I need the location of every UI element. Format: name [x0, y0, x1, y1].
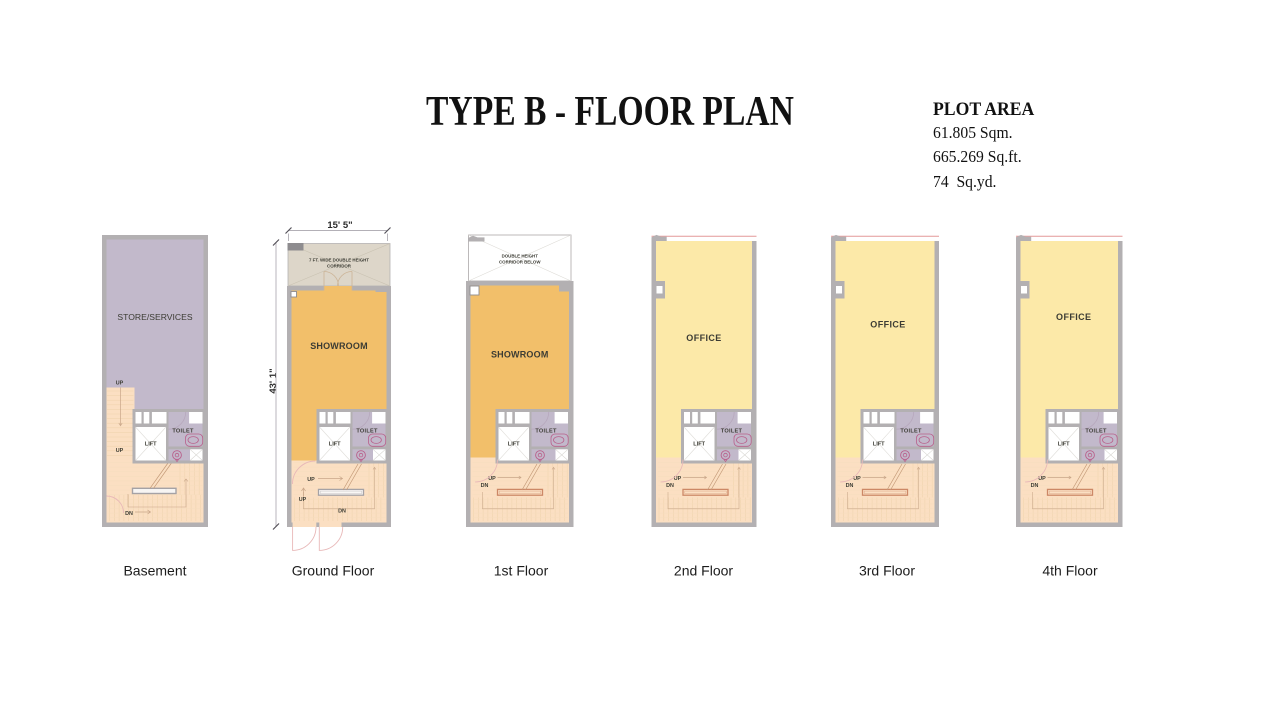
svg-text:UP: UP	[116, 381, 124, 387]
svg-text:Ground Floor: Ground Floor	[292, 563, 375, 579]
svg-text:LIFT: LIFT	[508, 442, 520, 448]
svg-text:OFFICE: OFFICE	[1056, 312, 1091, 322]
svg-text:CORRIDOR BELOW: CORRIDOR BELOW	[499, 259, 541, 264]
svg-text:DOUBLE HEIGHT: DOUBLE HEIGHT	[502, 254, 539, 259]
svg-text:UP: UP	[299, 497, 307, 503]
svg-text:DN: DN	[1031, 483, 1039, 489]
svg-text:CORRIDOR: CORRIDOR	[327, 264, 352, 269]
svg-text:SHOWROOM: SHOWROOM	[491, 350, 549, 360]
svg-text:DN: DN	[125, 511, 133, 517]
svg-text:LIFT: LIFT	[329, 442, 341, 448]
svg-text:LIFT: LIFT	[873, 442, 885, 448]
svg-text:3rd Floor: 3rd Floor	[859, 563, 915, 579]
svg-text:TOILET: TOILET	[535, 429, 557, 435]
svg-text:Basement: Basement	[123, 563, 186, 579]
svg-text:1st Floor: 1st Floor	[494, 563, 549, 579]
svg-text:OFFICE: OFFICE	[870, 320, 905, 330]
svg-text:4th Floor: 4th Floor	[1042, 563, 1098, 579]
svg-text:UP: UP	[116, 448, 124, 454]
svg-text:DN: DN	[846, 483, 854, 489]
svg-text:SHOWROOM: SHOWROOM	[310, 341, 368, 351]
svg-text:43' 1": 43' 1"	[268, 368, 279, 393]
svg-text:DN: DN	[481, 483, 489, 489]
svg-text:OFFICE: OFFICE	[686, 333, 721, 343]
svg-text:DN: DN	[666, 483, 674, 489]
svg-text:7 FT. WIDE DOUBLE HEIGHT: 7 FT. WIDE DOUBLE HEIGHT	[309, 258, 369, 263]
svg-text:2nd Floor: 2nd Floor	[674, 563, 733, 579]
svg-text:LIFT: LIFT	[1058, 442, 1070, 448]
svg-text:DN: DN	[338, 509, 346, 515]
svg-text:UP: UP	[307, 477, 315, 483]
svg-text:TOILET: TOILET	[900, 429, 922, 435]
svg-text:LIFT: LIFT	[693, 442, 705, 448]
svg-text:STORE/SERVICES: STORE/SERVICES	[117, 312, 192, 322]
svg-text:LIFT: LIFT	[145, 442, 157, 448]
svg-text:15' 5": 15' 5"	[327, 220, 352, 231]
